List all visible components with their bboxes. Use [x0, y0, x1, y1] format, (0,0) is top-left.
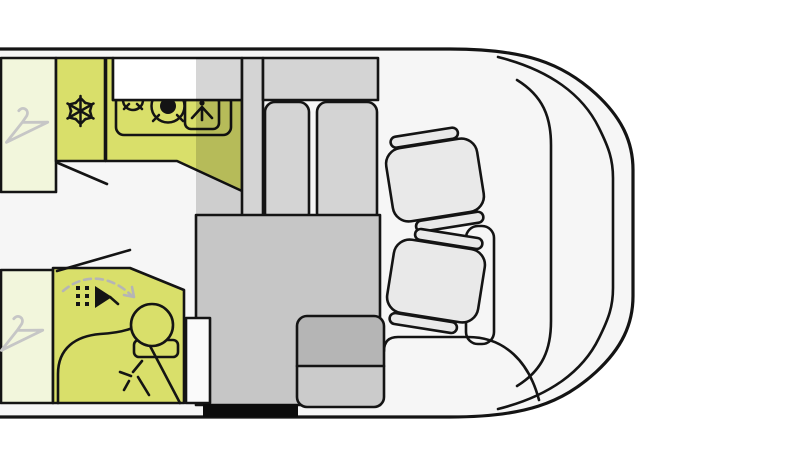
passenger-seat-cushion — [385, 237, 487, 324]
floorplan-stage — [0, 0, 798, 466]
two-tone-bench — [297, 316, 384, 407]
dinette-cushion-right — [317, 102, 377, 223]
wardrobe-top-body — [1, 58, 56, 192]
passenger-seat — [383, 225, 489, 336]
driver-seat-cushion — [384, 136, 486, 223]
floorplan-canvas — [0, 0, 798, 466]
rear-wardrobe-top — [0, 58, 56, 192]
dinette — [242, 58, 378, 223]
entry-step-white — [186, 318, 210, 403]
dinette-side-panel — [242, 58, 263, 217]
entry-step-black — [203, 404, 298, 417]
rear-wardrobe-bottom — [0, 270, 53, 403]
dinette-cushion-left — [265, 102, 309, 223]
overhead-shadow — [196, 58, 242, 215]
driver-seat — [382, 124, 488, 235]
dinette-top-sideboard — [263, 58, 378, 100]
